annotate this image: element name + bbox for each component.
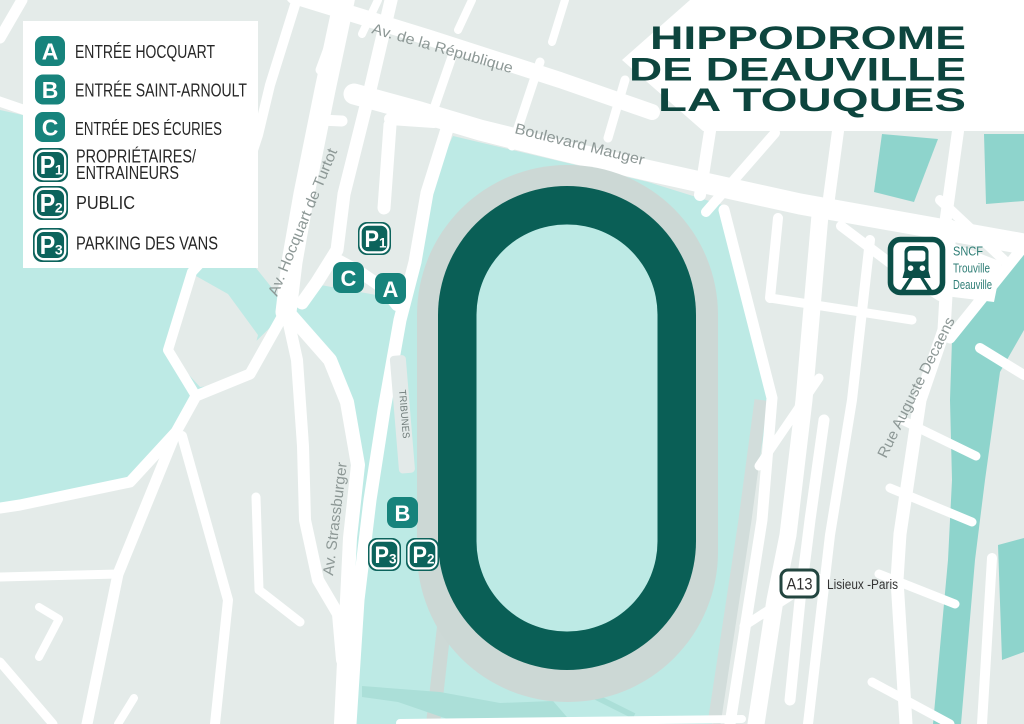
- svg-text:A: A: [42, 39, 59, 65]
- svg-text:SNCF: SNCF: [953, 245, 983, 259]
- svg-text:Lisieux -Paris: Lisieux -Paris: [827, 577, 898, 592]
- svg-text:B: B: [395, 501, 411, 526]
- svg-text:1: 1: [379, 236, 387, 251]
- svg-text:PUBLIC: PUBLIC: [76, 193, 135, 213]
- svg-text:A13: A13: [787, 576, 813, 594]
- svg-text:Deauville: Deauville: [953, 278, 992, 292]
- svg-text:P: P: [40, 150, 56, 180]
- svg-text:P: P: [40, 188, 56, 218]
- svg-text:ENTRAINEURS: ENTRAINEURS: [76, 163, 179, 183]
- svg-text:HIPPODROME: HIPPODROME: [650, 20, 966, 56]
- svg-text:B: B: [42, 77, 59, 103]
- svg-text:ENTRÉE DES ÉCURIES: ENTRÉE DES ÉCURIES: [75, 119, 222, 139]
- svg-text:P: P: [375, 542, 390, 569]
- svg-text:P: P: [413, 542, 428, 569]
- svg-text:Trouville: Trouville: [953, 262, 990, 276]
- svg-text:2: 2: [427, 552, 435, 567]
- svg-text:PARKING DES VANS: PARKING DES VANS: [76, 234, 218, 254]
- svg-text:C: C: [341, 266, 357, 291]
- svg-text:P: P: [40, 230, 56, 260]
- svg-text:3: 3: [55, 242, 63, 258]
- svg-text:C: C: [42, 115, 59, 141]
- svg-text:3: 3: [389, 552, 397, 567]
- svg-text:P: P: [365, 226, 380, 253]
- svg-text:LA TOUQUES: LA TOUQUES: [658, 82, 966, 118]
- svg-text:A: A: [383, 277, 399, 302]
- svg-text:ENTRÉE HOCQUART: ENTRÉE HOCQUART: [75, 42, 215, 62]
- svg-text:1: 1: [55, 162, 63, 178]
- svg-text:ENTRÉE SAINT-ARNOULT: ENTRÉE SAINT-ARNOULT: [75, 81, 247, 101]
- svg-text:2: 2: [55, 200, 63, 216]
